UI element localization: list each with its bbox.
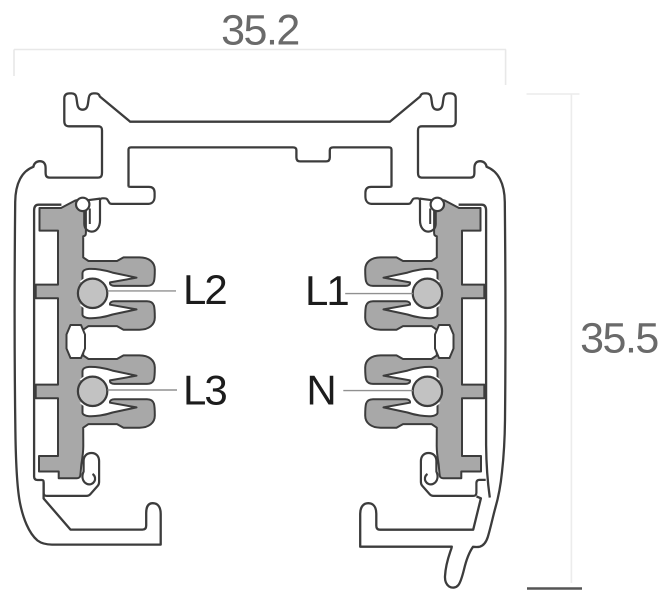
svg-text:35.2: 35.2 [221, 7, 299, 55]
svg-text:N: N [306, 367, 334, 414]
svg-text:35.5: 35.5 [580, 315, 658, 363]
svg-text:L1: L1 [305, 267, 348, 314]
svg-text:L2: L2 [183, 266, 226, 313]
svg-text:L3: L3 [183, 367, 226, 414]
